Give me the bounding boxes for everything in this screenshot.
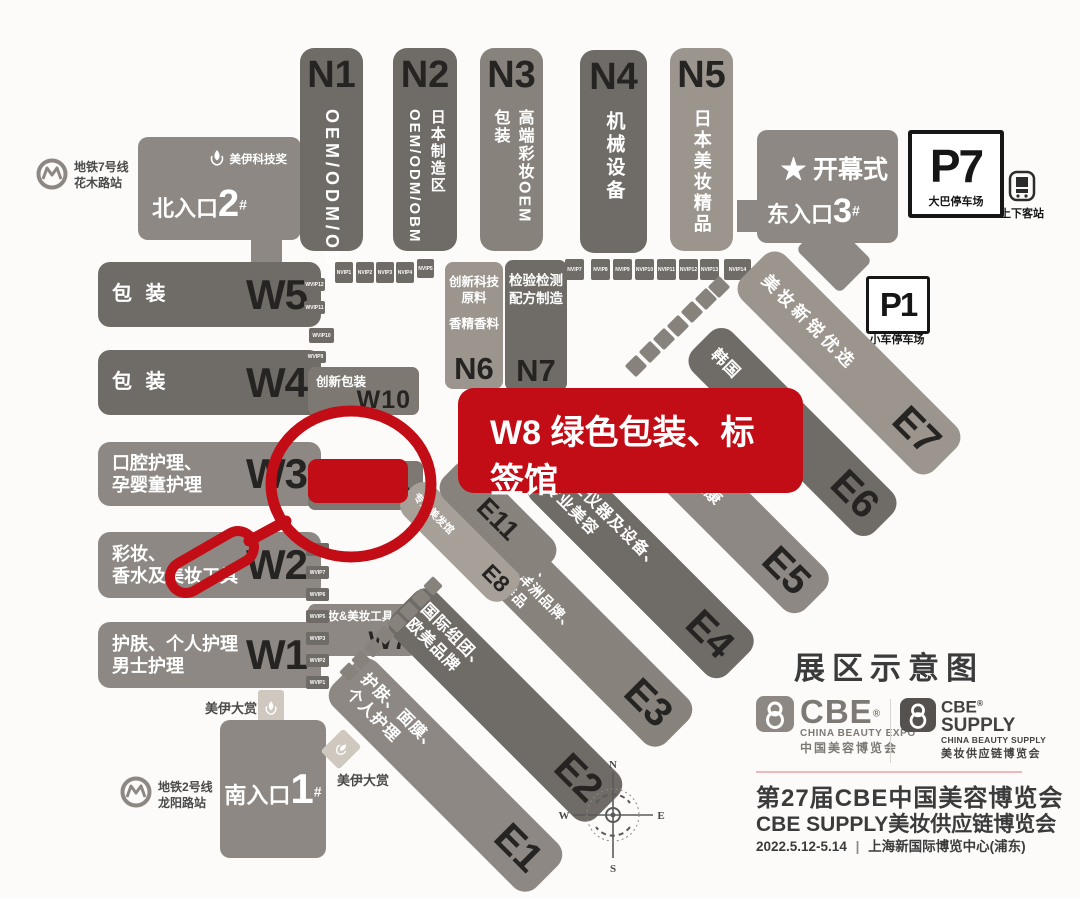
hall-n3: N3 高端彩妆OEM 包装 [480,48,543,251]
cbe-logo: CBE® CHINA BEAUTY EXPO 中国美容博览会 [756,696,916,756]
booth-wvip5: WVIP5 [306,610,329,623]
hall-n7-code: N7 [516,353,556,389]
hall-e4-code: E4 [677,601,743,667]
hall-n1-code: N1 [307,54,356,97]
meiyi-flower-icon [330,738,351,759]
parking-p1: P1 [866,276,930,334]
hall-w5-code: W5 [246,271,307,319]
hall-n5: N5 日本美妆精品 [670,48,733,251]
footer-date: 2022.5.12-5.14 [756,839,847,854]
footer-expo-line2: CBE SUPPLY美妆供应链博览会 [756,808,1056,838]
hall-w4-code: W4 [246,359,307,407]
hall-e7-code: E7 [883,397,949,463]
hall-w5: 包 装 W5 [98,262,321,327]
hall-n5-code: N5 [677,54,726,97]
hall-w2-label: 彩妆、 [112,543,238,566]
booth-wvip7: WVIP7 [306,566,329,579]
hall-n6-code: N6 [454,351,494,387]
hall-w2-code: W2 [246,541,307,589]
hall-w3: 口腔护理、孕婴童护理 W3 [98,442,321,506]
parking-p1-code: P1 [880,286,916,324]
booth-nvip2: NVIP2 [356,262,374,283]
tech-award-label: 美伊科技奖 [230,151,288,167]
north-entrance: 美伊科技奖 北入口2# [138,137,301,240]
hall-w3-code: W3 [246,450,307,498]
supply-logo-reg: ® [977,698,984,708]
booth-nvip8: NVIP8 [591,259,610,280]
metro-line7-icon [36,158,68,190]
hall-w1-label: 护肤、个人护理 [112,633,238,656]
w8-highlight-banner: W8 绿色包装、标签馆 [458,388,803,493]
parking-p7-label: 大巴停车场 [929,193,984,209]
hall-n3-code: N3 [487,54,536,97]
hall-n7-label: 检验检测 [509,272,563,290]
compass-rose: N E S W [548,758,678,878]
booth-nvip10: NVIP10 [635,259,654,280]
booth-nvip4: NVIP4 [396,262,414,283]
cbe-logo-reg: ® [873,709,881,720]
meiyi-flower-icon [264,700,278,718]
booth-nvip5: NVIP5 [417,259,434,278]
hall-n4-code: N4 [589,56,638,99]
hall-w1-code: W1 [246,631,307,679]
parking-p7: P7 大巴停车场 [908,130,1004,218]
hall-n2-label: 日本制造区 [425,109,448,244]
north-entrance-hash: # [239,197,247,213]
cbe-supply-logo: CBE® SUPPLY CHINA BEAUTY SUPPLY 美妆供应链博览会 [900,698,1046,761]
hall-n6-label2: 香精香料 [449,316,499,332]
hall-n3-label2: 包装 [488,109,512,223]
metro-line2-icon [120,776,152,808]
east-entrance: ★ 开幕式 东入口3# [757,130,898,243]
metro-line7-label: 地铁7号线 花木路站 [74,160,129,191]
bus-stop-icon [1008,170,1036,202]
hall-n5-label: 日本美妆精品 [688,109,715,235]
booth-wvip8: WVIP8 [306,543,329,556]
hall-n2-label2: OEM/ODM/OBM [402,109,425,244]
cbe-supply-logo-icon [900,698,936,732]
hall-n6: 创新科技原料 香精香料 N6 [445,262,503,389]
hall-w10: 创新包装 W10 [308,367,419,415]
hall-e6-code: E6 [822,461,888,527]
hall-w1: 护肤、个人护理男士护理 W1 [98,622,321,688]
hall-w2: 彩妆、香水及美妆工具 W2 [98,532,321,598]
compass-e: E [657,810,664,822]
cbe-logo-name: CBE [800,693,873,730]
supply-logo-sub: CHINA BEAUTY SUPPLY [941,735,1046,745]
hall-n4-label: 机械设备 [600,111,628,203]
parking-p7-code: P7 [930,139,982,193]
hall-w4-label: 包 装 [112,370,170,395]
hall-n1: N1 OEM/ODM/OBM [300,48,363,251]
hall-n2: N2 日本制造区 OEM/ODM/OBM [393,48,457,251]
expo-floor-map: 地铁7号线 花木路站 美伊科技奖 北入口2# N1 OEM/ODM/OBM N2… [0,0,1080,899]
hall-w10-code: W10 [357,386,411,415]
hall-n4: N4 机械设备 [580,50,647,253]
footer-divider [756,771,1022,773]
north-entrance-name: 北入口 [152,196,218,221]
hall-e5-code: E5 [753,538,819,604]
supply-logo-cn: 美妆供应链博览会 [941,745,1046,761]
logo-divider [890,699,891,763]
booth-nvip1: NVIP1 [335,262,353,283]
booth-nvip9: NVIP9 [613,259,632,280]
booth-wvip11: WVIP11 [304,301,325,314]
supply-logo-name1: CBE [941,697,977,716]
booth-wvip3: WVIP3 [306,632,329,645]
meiyi-flower-icon [209,149,225,169]
south-entrance-hash: # [314,784,322,800]
hall-e1-code: E1 [485,815,551,881]
hall-e6-label: 韩国 [706,345,745,384]
booth-wvip2: WVIP2 [306,654,329,667]
bus-stop-label: 上下客站 [1000,205,1044,221]
compass-n: N [609,759,617,771]
booth-wvip1: WVIP1 [306,676,329,689]
east-entrance-hash: # [852,203,860,219]
cbe-logo-sub: CHINA BEAUTY EXPO [800,728,916,739]
east-entrance-number: 3 [833,192,852,230]
star-icon: ★ [781,156,806,184]
map-title: 展区示意图 [750,643,1028,688]
booth-wvip10: WVIP10 [309,328,334,343]
north-entrance-tab-down [251,236,282,264]
metro-line2-label: 地铁2号线 龙阳路站 [158,780,213,811]
hall-n7: 检验检测 配方制造 N7 [505,260,567,391]
footer-venue: 上海新国际博览中心(浦东) [868,839,1026,854]
north-entrance-number: 2 [218,183,239,225]
grand-award-label-1: 美伊大赏 [205,698,257,717]
hall-n6-label: 创新科技原料 [448,274,500,307]
hall-w8-highlighted [308,459,408,503]
cbe-logo-cn: 中国美容博览会 [800,739,916,756]
footer-sep: | [856,839,860,854]
cbe-logo-icon [756,696,794,732]
hall-w4: 包 装 W4 [98,350,321,415]
south-entrance-name: 南入口 [224,783,290,808]
booth-wvip12: WVIP12 [304,278,325,291]
east-entrance-tab-left [737,200,759,232]
hall-n7-label2: 配方制造 [509,290,563,308]
compass-w: W [559,810,570,822]
booth-wvip6: WVIP6 [306,588,329,601]
supply-logo-name2: SUPPLY [941,717,1046,735]
hall-n2-code: N2 [401,54,450,97]
opening-ceremony-label: 开幕式 [813,156,888,184]
hall-w3-label: 口腔护理、 [112,452,202,475]
east-entrance-name: 东入口 [767,202,833,227]
footer-date-venue: 2022.5.12-5.14 | 上海新国际博览中心(浦东) [756,835,1026,855]
booth-nvip7: NVIP7 [565,259,584,280]
south-entrance: 南入口1# [220,720,326,858]
hall-e3-code: E3 [615,670,681,736]
south-entrance-number: 1 [290,765,313,812]
compass-s: S [610,863,616,875]
booth-wvip9: WVIP9 [305,351,326,363]
booth-nvip11: NVIP11 [657,259,676,280]
booth-nvip12: NVIP12 [679,259,698,280]
hall-n3-label: 高端彩妆OEM [512,109,536,223]
booth-nvip3: NVIP3 [376,262,394,283]
w8-banner-text: W8 绿色包装、标签馆 [490,414,754,500]
grand-award-label-2: 美伊大赏 [337,770,389,789]
hall-w5-label: 包 装 [112,282,170,307]
grand-award-logo-2 [320,728,361,769]
